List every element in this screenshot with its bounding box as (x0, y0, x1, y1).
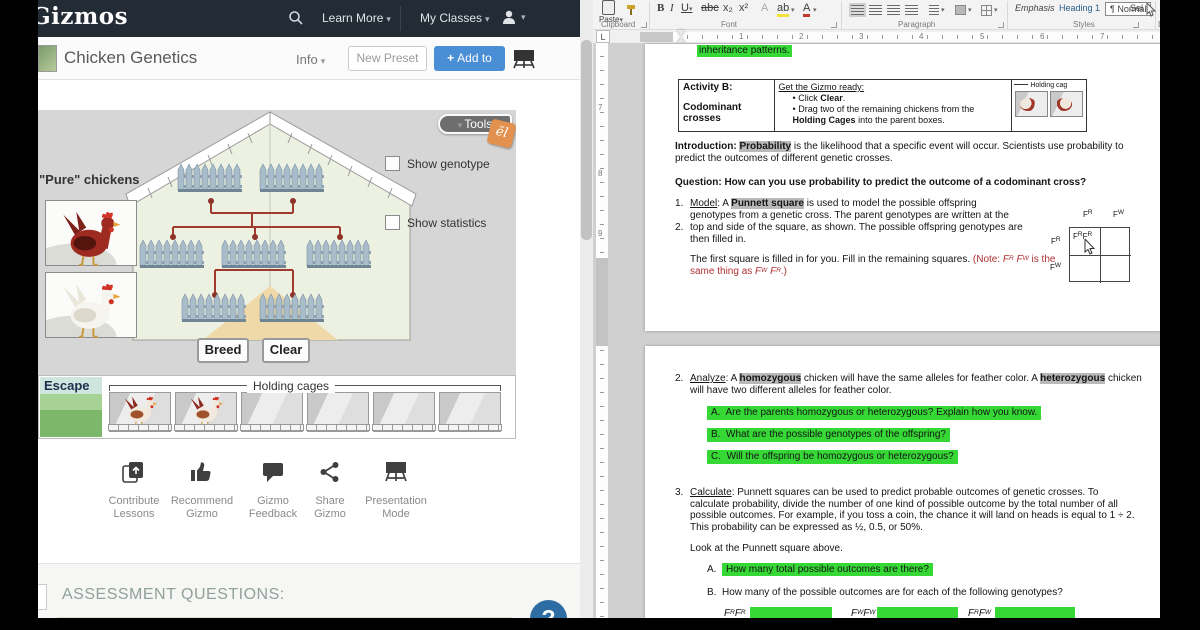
share-icon (318, 460, 342, 484)
calc-question-b: B. How many of the possible outcomes are… (707, 587, 1063, 599)
strikethrough-button[interactable]: abc (701, 2, 719, 14)
show-genotype-label: Show genotype (407, 157, 490, 171)
activity-table-cell-steps: Get the Gizmo ready: • Click Clear. • Dr… (775, 80, 1013, 131)
genotype-frfr-label: FRFR (724, 608, 746, 618)
format-painter-icon[interactable] (625, 4, 637, 16)
caret-down-icon: ▾ (386, 14, 391, 24)
gizmos-browser-window: Gizmos Learn More▾ My Classes▾ ▾ Chicken… (38, 0, 580, 618)
punnett-col-header-1: FR (1083, 210, 1093, 219)
tab-selector[interactable]: L (596, 30, 610, 43)
style-emphasis[interactable]: Emphasis (1015, 3, 1055, 13)
highlighted-text: inheritance patterns. (697, 45, 792, 57)
question-b: B. What are the possible genotypes of th… (707, 428, 950, 442)
paragraph-group-label: Paragraph (898, 20, 935, 29)
help-button[interactable]: ? (530, 600, 567, 618)
underline-button[interactable]: U▾ (681, 2, 692, 14)
bracket-right (307, 385, 501, 391)
cage-feeder (372, 424, 436, 431)
gizmos-logo[interactable]: Gizmos (38, 3, 128, 30)
styles-dialog-launcher[interactable] (1133, 22, 1139, 28)
account-menu[interactable]: ▾ (500, 8, 526, 26)
paragraph-dialog-launcher[interactable] (998, 22, 1004, 28)
answer-box-frfw[interactable] (995, 607, 1075, 618)
recommend-gizmo-button[interactable]: RecommendGizmo (166, 460, 238, 521)
cage-feeder (240, 424, 304, 431)
assessment-section: ASSESSMENT QUESTIONS: ? (38, 564, 580, 618)
nav-divider (400, 6, 401, 31)
style-normal[interactable]: ¶ Normal (1105, 2, 1151, 16)
caret-down-icon: ▾ (968, 6, 972, 14)
gizmo-simulation: ▾Tools ĕl "Pure" chickens Show genotype … (38, 110, 516, 375)
search-icon[interactable] (288, 10, 304, 26)
clipboard-dialog-launcher[interactable] (641, 22, 647, 28)
holding-cage-1[interactable] (109, 392, 171, 432)
select-label[interactable]: Sel (1130, 3, 1143, 13)
holding-cages-image-label: Holding cag (1030, 80, 1067, 92)
word-window: Paste▾ Clipboard B I U▾ abc x₂ x² A ab ▾… (593, 0, 1160, 618)
question-a: A. Are the parents homozygous or heteroz… (707, 406, 1041, 420)
question-c: C. Will the offspring be homozygous or h… (707, 450, 958, 464)
thumbs-up-icon (190, 460, 214, 484)
clear-button[interactable]: Clear (262, 338, 310, 363)
caret-down-icon: ▾ (521, 12, 526, 22)
horizontal-ruler: 1 2 3 4 5 6 7 (640, 32, 1160, 42)
first-line-indent-marker[interactable] (677, 30, 685, 36)
font-color-button[interactable]: A (803, 2, 810, 17)
letterbox-bottom (0, 618, 1200, 630)
select-cursor-icon[interactable] (1146, 3, 1156, 17)
escape-label: Escape (44, 378, 90, 393)
align-left-button[interactable] (851, 5, 864, 15)
caret-down-icon: ▾ (689, 6, 693, 13)
font-group-label: Font (721, 20, 737, 29)
clipboard-group-label: Clipboard (601, 20, 635, 29)
group-divider (1007, 1, 1008, 29)
screen: Gizmos Learn More▾ My Classes▾ ▾ Chicken… (0, 0, 1200, 630)
ruler-row: L 1 2 3 4 5 6 7 (593, 30, 1160, 43)
gizmo-thumbnail[interactable] (38, 45, 57, 72)
letterbox-left (0, 0, 38, 630)
add-to-button[interactable]: +Add to (434, 46, 505, 71)
holding-cages-label: Holding cages (247, 379, 335, 393)
superscript-button[interactable]: x² (739, 2, 748, 14)
italic-button[interactable]: I (670, 2, 674, 14)
scrollbar-thumb[interactable] (581, 40, 592, 240)
activity-table: Activity B: Codominant crosses Get the G… (678, 79, 1087, 132)
genotype-frfw-label: FRFW (968, 608, 991, 618)
font-dialog-launcher[interactable] (831, 22, 837, 28)
punnett-square[interactable]: FRFR (1069, 227, 1130, 282)
side-tab[interactable] (38, 584, 47, 610)
gizmo-titlebar: Chicken Genetics Info▾ New Preset +Add t… (38, 37, 580, 80)
caret-down-icon: ▾ (321, 56, 326, 66)
document-page-1[interactable]: inheritance patterns. Activity B: Codomi… (645, 44, 1160, 331)
show-statistics-checkbox[interactable] (385, 215, 400, 230)
info-dropdown[interactable]: Info▾ (296, 52, 325, 67)
word-ribbon: Paste▾ Clipboard B I U▾ abc x₂ x² A ab ▾… (593, 0, 1160, 30)
pure-chickens-label: "Pure" chickens (39, 172, 139, 187)
holding-cage-5[interactable] (373, 392, 435, 432)
answer-box-frfr[interactable] (750, 607, 832, 618)
gizmos-navbar: Gizmos Learn More▾ My Classes▾ ▾ (38, 0, 580, 37)
nav-my-classes[interactable]: My Classes▾ (420, 11, 490, 25)
contribute-lessons-icon (121, 460, 147, 484)
cage-feeder (174, 424, 238, 431)
pure-red-chicken[interactable] (45, 200, 137, 266)
holding-cage-3[interactable] (241, 392, 303, 432)
punnett-row-header-2: FW (1050, 263, 1061, 272)
contribute-lessons-button[interactable]: ContributeLessons (98, 460, 170, 521)
calc-question-a: A. How many total possible outcomes are … (707, 564, 933, 576)
assessment-title: ASSESSMENT QUESTIONS: (62, 586, 285, 604)
show-genotype-checkbox[interactable] (385, 156, 400, 171)
look-paragraph: Look at the Punnett square above. (690, 543, 843, 555)
show-statistics-row: Show statistics (385, 215, 486, 230)
question-paragraph: Question: How can you use probability to… (675, 177, 1160, 189)
tools-caret-icon: ▾ (458, 120, 463, 130)
mouse-cursor-icon (1084, 239, 1096, 255)
person-icon (500, 8, 518, 26)
item-1-model: 1. Model: A Punnett square is used to mo… (675, 198, 1022, 221)
pure-white-chicken[interactable] (45, 272, 137, 338)
caret-down-icon: ▾ (994, 6, 998, 14)
mini-cage-image (1050, 91, 1083, 117)
activity-table-cell-image: Holding cag (1012, 80, 1086, 131)
genotype-fwfw-label: FWFW (851, 608, 876, 618)
align-justify-button[interactable] (905, 5, 918, 15)
show-genotype-row: Show genotype (385, 156, 490, 171)
group-divider (841, 1, 842, 29)
holding-cages-panel: Escape Holding cages (38, 375, 516, 439)
answer-box-fwfw[interactable] (877, 607, 958, 618)
borders-button[interactable] (981, 5, 992, 16)
caret-down-icon: ▾ (813, 6, 817, 14)
breed-button[interactable]: Breed (197, 338, 249, 363)
page-title: Chicken Genetics (64, 48, 197, 68)
document-page-2[interactable]: 2. Analyze: A homozygous chicken will ha… (645, 346, 1160, 618)
punnett-col-header-2: FW (1113, 210, 1124, 219)
bold-button[interactable]: B (657, 2, 664, 14)
holding-cage-4[interactable] (307, 392, 369, 432)
styles-group-label: Styles (1073, 20, 1095, 29)
style-heading1[interactable]: Heading 1 (1059, 3, 1100, 13)
cage-feeder (438, 424, 502, 431)
first-square-paragraph: The first square is filled in for you. F… (690, 254, 1062, 277)
item-2-continuation: 2. top and side of the square, as shown.… (675, 222, 1035, 245)
activity-table-cell-title: Activity B: Codominant crosses (679, 80, 775, 131)
speech-bubble-icon (261, 460, 285, 484)
presentation-mode-icon[interactable] (512, 49, 536, 69)
presentation-mode-icon (382, 460, 410, 484)
punnett-row-header-1: FR (1051, 237, 1061, 246)
item-3-calculate: 3. Calculate: Punnett squares can be use… (675, 487, 1135, 533)
presentation-mode-button[interactable]: PresentationMode (360, 460, 432, 521)
shading-button[interactable] (955, 5, 966, 15)
mini-cage-image (1015, 91, 1048, 117)
share-gizmo-button[interactable]: ShareGizmo (294, 460, 366, 521)
document-canvas: 7 8 9 inheritance patterns. Activity B: … (593, 43, 1160, 618)
highlight-color-button[interactable]: ab (777, 2, 789, 17)
clear-formatting-button[interactable]: A (761, 2, 768, 14)
subscript-button[interactable]: x₂ (723, 2, 733, 14)
caret-down-icon: ▾ (485, 14, 490, 24)
intro-paragraph: Introduction: Probability is the likelih… (675, 141, 1155, 164)
new-preset-button[interactable]: New Preset (348, 46, 427, 71)
letterbox-right (1160, 0, 1200, 630)
vertical-ruler: 7 8 9 (596, 43, 608, 618)
bracket-left (109, 385, 249, 391)
cage-feeder (108, 424, 172, 431)
group-divider (649, 1, 650, 29)
line-spacing-button[interactable] (929, 5, 939, 15)
show-statistics-label: Show statistics (407, 216, 486, 230)
browser-scrollbar[interactable] (580, 0, 593, 618)
cage-feeder (306, 424, 370, 431)
holding-cage-6[interactable] (439, 392, 501, 432)
caret-down-icon: ▾ (791, 6, 795, 14)
align-right-button[interactable] (887, 5, 900, 15)
plus-icon: + (447, 51, 454, 65)
caret-down-icon: ▾ (941, 6, 945, 14)
nav-learn-more[interactable]: Learn More▾ (322, 11, 391, 25)
item-2-analyze: 2. Analyze: A homozygous chicken will ha… (675, 373, 1157, 396)
holding-cage-2[interactable] (175, 392, 237, 432)
align-center-button[interactable] (869, 5, 882, 15)
